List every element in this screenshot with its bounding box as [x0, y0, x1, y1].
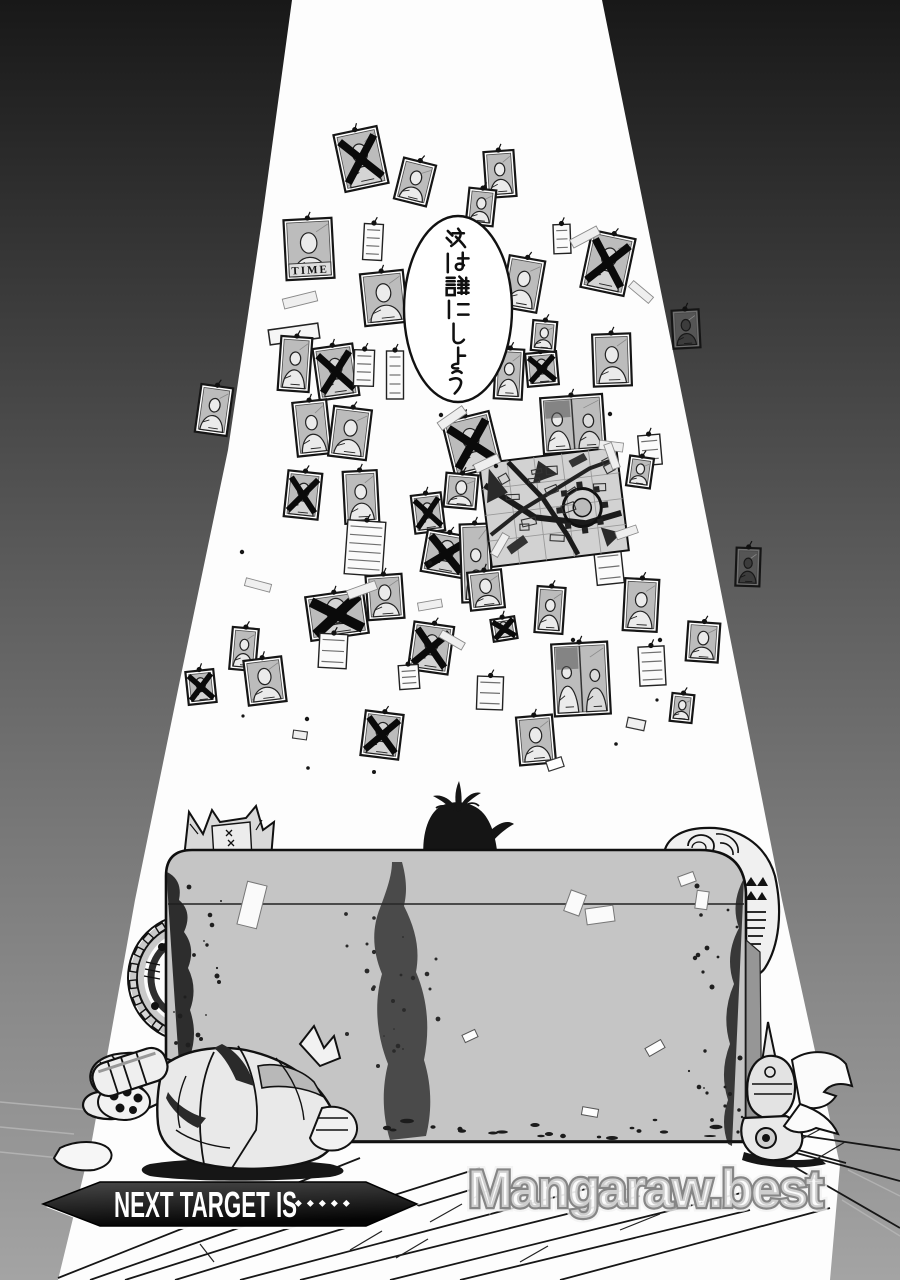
svg-text:NEXT TARGET IS: NEXT TARGET IS: [114, 1186, 297, 1226]
svg-text:TIME: TIME: [291, 264, 329, 278]
svg-text:Mangaraw.best: Mangaraw.best: [468, 1160, 823, 1219]
